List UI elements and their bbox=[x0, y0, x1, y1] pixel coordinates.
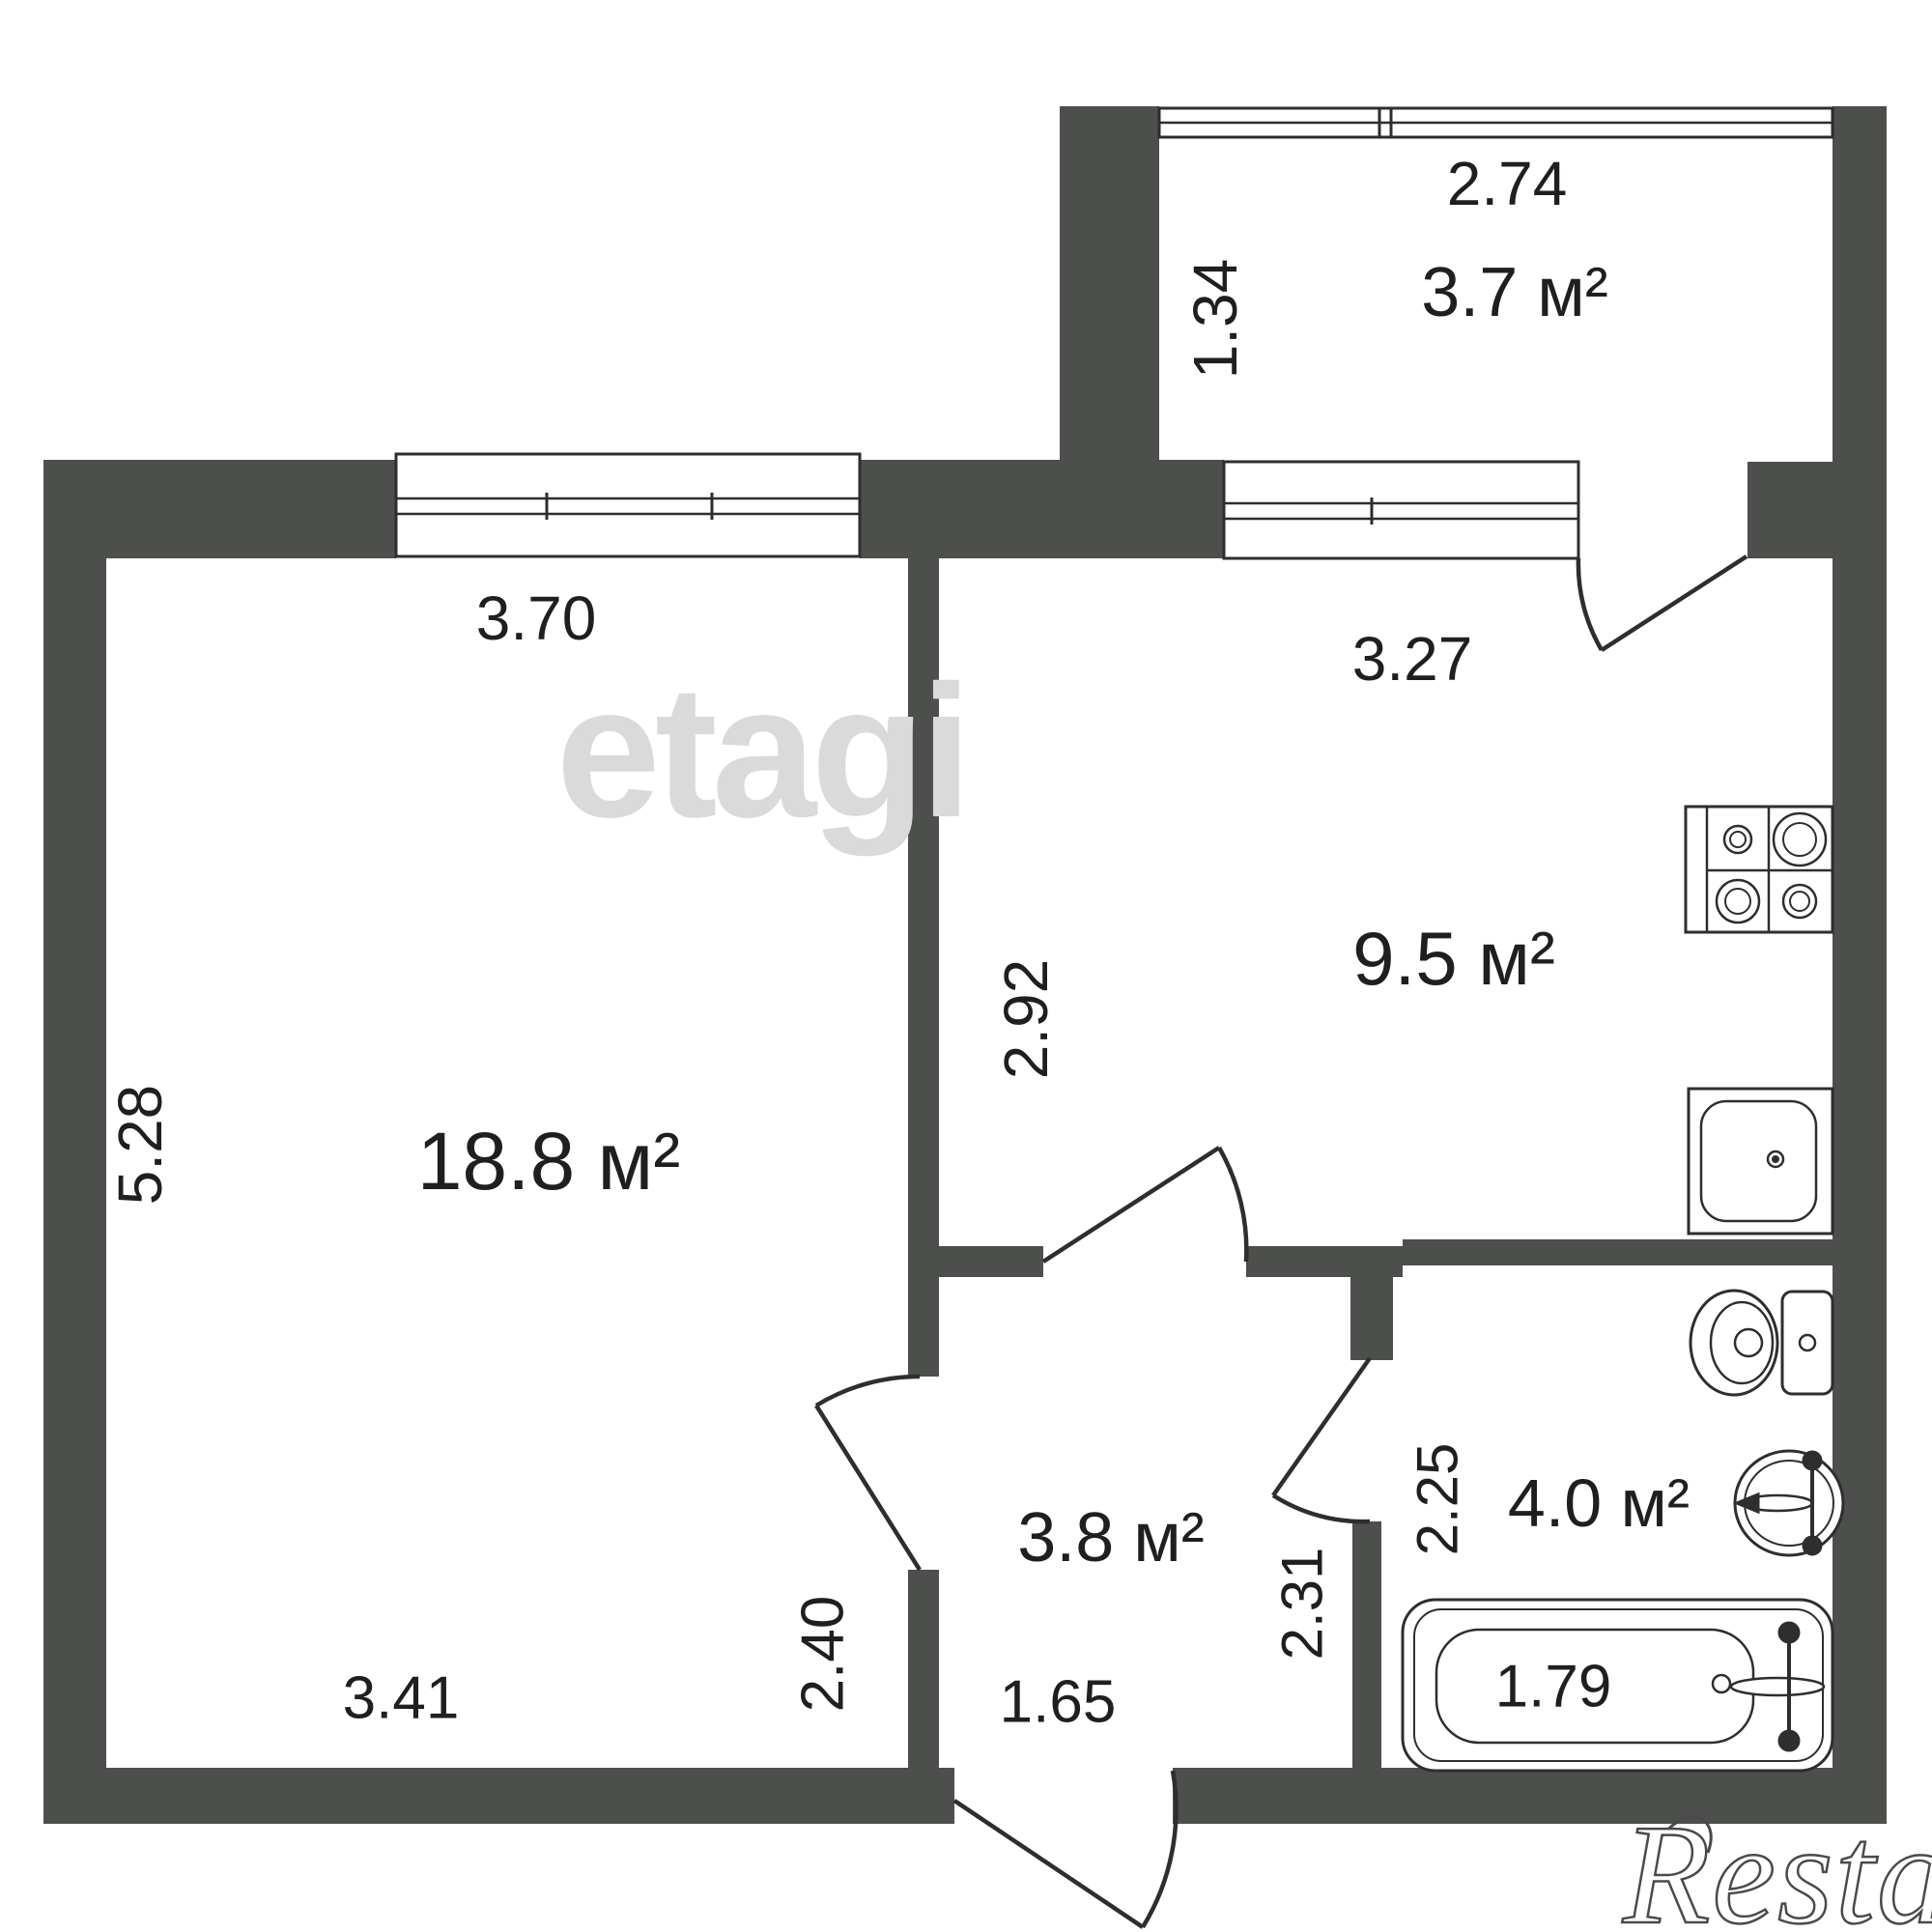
wall-bathroom-door-stub bbox=[1350, 1277, 1393, 1360]
tub-faucet-blade bbox=[1731, 1678, 1824, 1695]
wall-top-living-left bbox=[43, 460, 396, 558]
stove-icon bbox=[1686, 807, 1833, 932]
labels: 2.74 1.34 3.7 м² 3.70 18.8 м² 5.28 3.41 … bbox=[105, 149, 1690, 1736]
label-balcony-depth: 1.34 bbox=[1180, 259, 1250, 380]
wall-right-exterior bbox=[1833, 106, 1887, 1824]
living-window bbox=[396, 454, 860, 556]
kitchen-sink-icon bbox=[1689, 1089, 1833, 1234]
label-kitchen-area: 9.5 м² bbox=[1352, 916, 1555, 1001]
label-hall-area: 3.8 м² bbox=[1017, 1499, 1205, 1577]
sink-drain-dot bbox=[1774, 1157, 1778, 1162]
watermark-etagi: etagi bbox=[555, 646, 966, 857]
kitchen-door-leaf bbox=[1043, 1148, 1219, 1262]
floor-plan: etagi Restate 2.74 1.34 3.7 м² 3.70 18.8… bbox=[0, 0, 1932, 1932]
wall-kitchen-top-stub bbox=[1747, 462, 1833, 558]
label-living-window-width: 3.70 bbox=[476, 583, 597, 653]
floor-plan-svg: etagi Restate 2.74 1.34 3.7 м² 3.70 18.8… bbox=[0, 0, 1932, 1932]
label-living-door-wall: 2.40 bbox=[790, 1596, 857, 1713]
label-hall-bath-wall: 2.31 bbox=[1270, 1548, 1335, 1661]
bathroom-door-leaf bbox=[1273, 1358, 1370, 1495]
stove-burner bbox=[1730, 832, 1746, 847]
walls bbox=[43, 106, 1887, 1824]
basin-faucet-knob bbox=[1804, 1537, 1821, 1554]
bathtub-icon bbox=[1403, 1600, 1833, 1771]
watermark-restate: Restate bbox=[1622, 1796, 1932, 1932]
wall-hall-top-right bbox=[1246, 1246, 1403, 1277]
living-door-leaf bbox=[816, 1406, 920, 1570]
label-balcony-area: 3.7 м² bbox=[1421, 254, 1608, 331]
tub-faucet-knob bbox=[1779, 1731, 1799, 1750]
label-hall-width: 1.65 bbox=[1000, 1669, 1117, 1736]
label-balcony-width: 2.74 bbox=[1447, 149, 1568, 218]
wall-hall-top-left bbox=[939, 1246, 1043, 1277]
kitchen-door-arc bbox=[1219, 1148, 1246, 1262]
entrance-door-leaf bbox=[954, 1801, 1143, 1927]
entrance-door-arc bbox=[1143, 1771, 1176, 1927]
wall-balcony-left bbox=[1060, 106, 1159, 464]
wall-kitchen-bathroom bbox=[1403, 1239, 1833, 1265]
label-living-width: 3.41 bbox=[343, 1665, 460, 1732]
label-bath-depth: 2.25 bbox=[1406, 1443, 1470, 1556]
kitchen-window bbox=[1224, 462, 1578, 558]
toilet-icon bbox=[1690, 1291, 1833, 1395]
label-living-height: 5.28 bbox=[105, 1085, 175, 1206]
label-living-area: 18.8 м² bbox=[417, 1116, 681, 1207]
bathroom-door-arc bbox=[1273, 1495, 1370, 1521]
label-bathtub-length: 1.79 bbox=[1495, 1654, 1612, 1720]
label-kitchen-depth: 2.92 bbox=[991, 959, 1061, 1080]
wall-bottom-left bbox=[43, 1768, 954, 1824]
basin-faucet-knob bbox=[1804, 1452, 1821, 1469]
wall-left-exterior bbox=[43, 460, 106, 1824]
label-kitchen-window-width: 3.27 bbox=[1352, 624, 1473, 694]
living-door-arc bbox=[816, 1377, 920, 1406]
balcony-door-arc bbox=[1578, 558, 1602, 650]
stove-burner bbox=[1725, 889, 1750, 914]
wall-divider-living-lower bbox=[908, 1570, 939, 1768]
label-bath-area: 4.0 м² bbox=[1508, 1465, 1690, 1541]
balcony-door-leaf bbox=[1602, 556, 1747, 650]
toilet-button bbox=[1800, 1335, 1815, 1350]
stove-burner bbox=[1790, 892, 1809, 911]
tub-faucet-knob bbox=[1779, 1623, 1799, 1642]
wall-hall-bathroom bbox=[1352, 1521, 1381, 1768]
wall-top-middle bbox=[860, 460, 1224, 558]
washbasin-icon bbox=[1735, 1451, 1843, 1555]
stove-burner bbox=[1783, 823, 1816, 856]
